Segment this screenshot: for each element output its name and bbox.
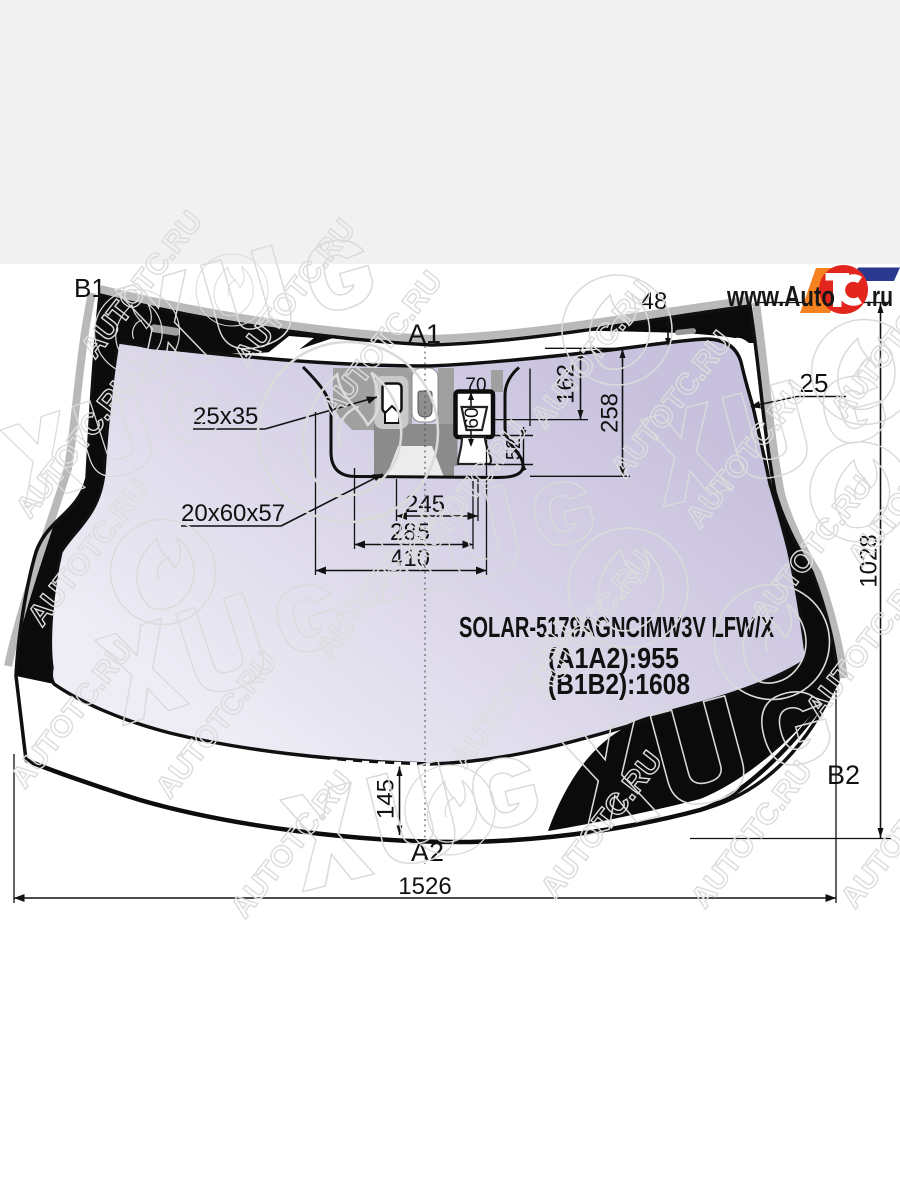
- svg-text:70: 70: [465, 375, 486, 396]
- svg-text:1526: 1526: [398, 873, 451, 900]
- svg-text:B2: B2: [827, 760, 860, 790]
- svg-text:20x60x57: 20x60x57: [181, 500, 285, 527]
- svg-text:258: 258: [596, 393, 623, 433]
- svg-text:www.Auto: www.Auto: [726, 281, 835, 313]
- svg-text:B1: B1: [74, 273, 106, 303]
- svg-text:60: 60: [462, 407, 483, 428]
- svg-text:145: 145: [372, 779, 399, 819]
- svg-text:25x35: 25x35: [193, 403, 258, 430]
- svg-text:.ru: .ru: [866, 281, 893, 313]
